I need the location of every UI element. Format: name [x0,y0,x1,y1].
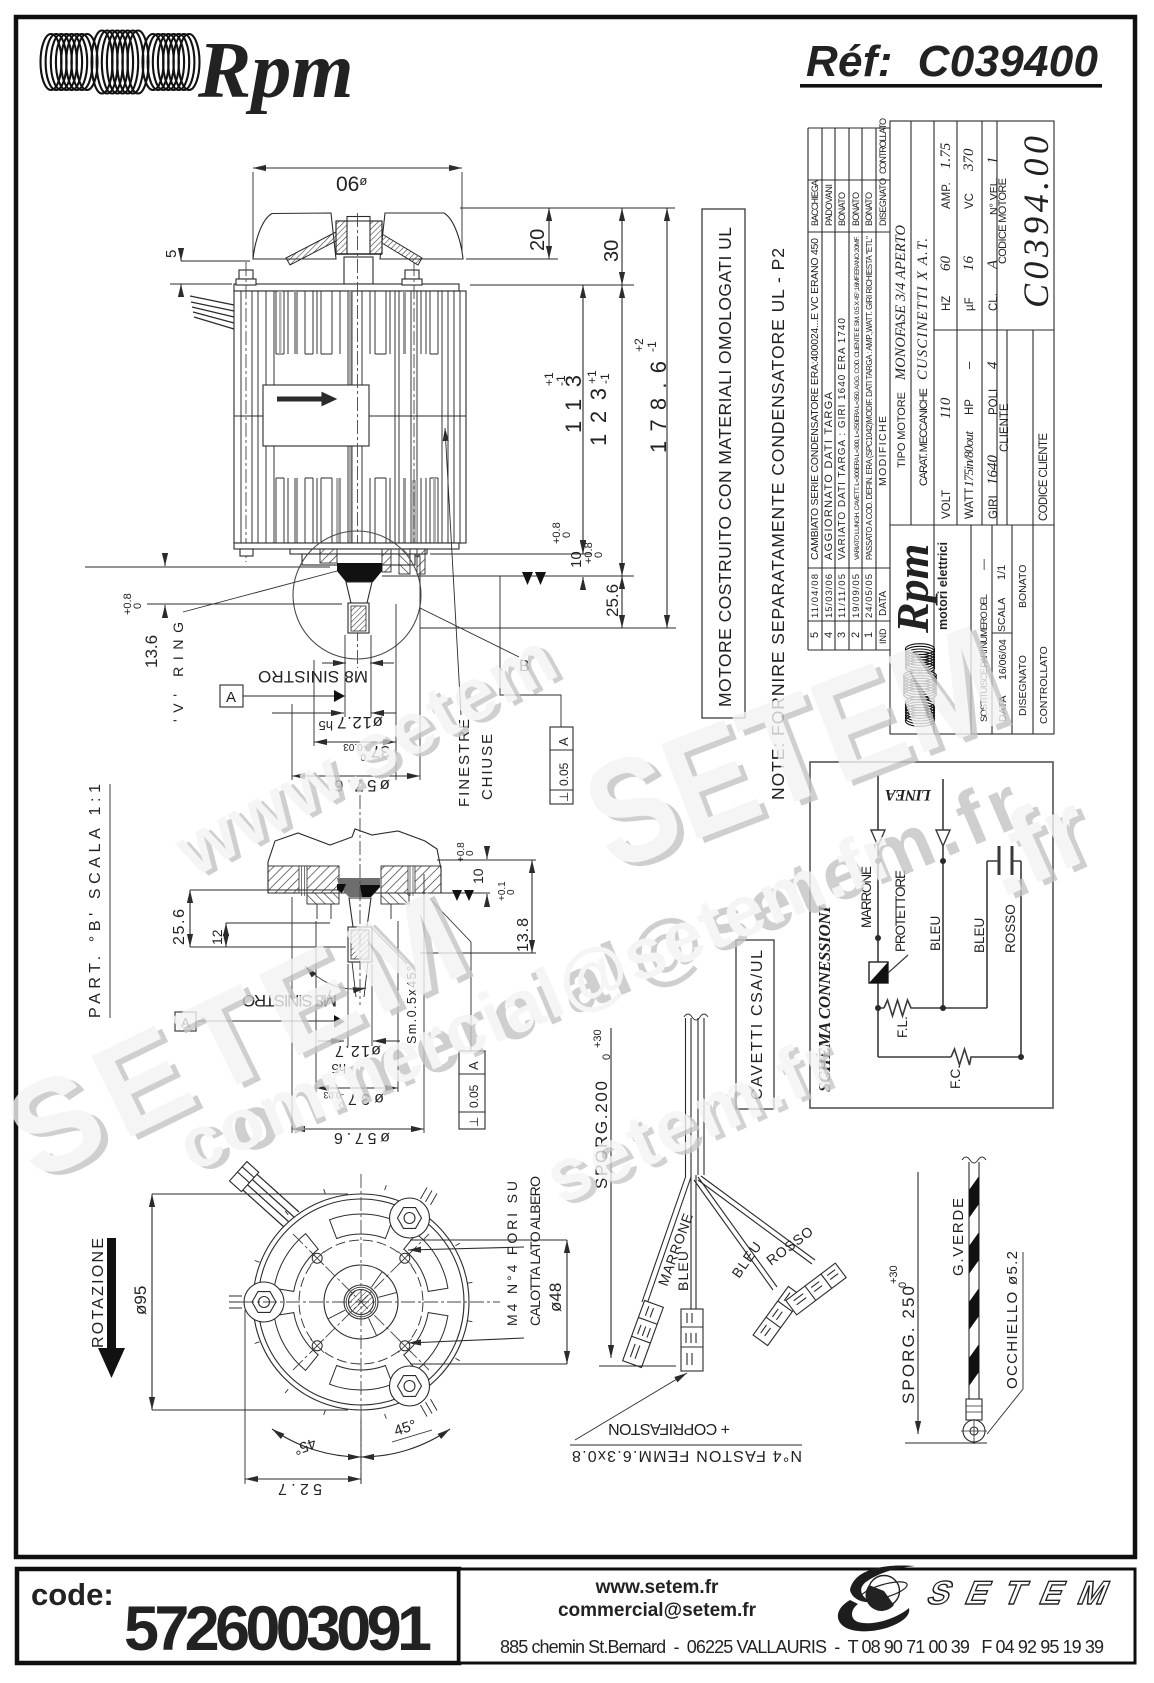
svg-text:DISEGNATO: DISEGNATO [1017,655,1029,716]
svg-text:HP: HP [964,399,976,415]
svg-text:CARAT. MECCANICHE: CARAT. MECCANICHE [918,388,930,486]
svg-text:PADOVANI: PADOVANI [824,184,834,226]
svg-text:VC: VC [964,193,976,209]
svg-text:BLEU: BLEU [972,918,987,953]
svg-text:Réf: C039400: Réf: C039400 [806,37,1099,86]
svg-text:24/05/05: 24/05/05 [864,574,875,618]
svg-text:45°: 45° [392,1417,419,1440]
svg-text:45°: 45° [291,1434,318,1458]
svg-text:25.6: 25.6 [171,909,188,945]
svg-text:ø48: ø48 [546,1283,565,1312]
svg-text:M4 N°4 FORI SU: M4 N°4 FORI SU [504,1181,520,1326]
svg-text:4: 4 [823,632,835,638]
svg-text:HZ: HZ [941,296,953,311]
svg-text:A: A [226,689,236,706]
svg-text:www.setem.fr: www.setem.fr [595,1577,719,1598]
svg-text:0.05: 0.05 [557,762,571,786]
svg-text:CAMBIATO SERIE CONDENSATORE ER: CAMBIATO SERIE CONDENSATORE ERA:400024..… [809,238,821,560]
svg-text:11/04/08: 11/04/08 [810,574,821,618]
svg-text:175in/80out: 175in/80out [961,431,976,487]
svg-text:0.05: 0.05 [467,1084,481,1108]
svg-text:BONATO: BONATO [837,192,847,226]
svg-text:µF: µF [964,297,976,311]
svg-text:code:: code: [31,1577,114,1612]
svg-text:15/03/06: 15/03/06 [824,574,835,618]
svg-text:TIPO MOTORE: TIPO MOTORE [896,392,908,468]
svg-text:CUSCINETTI X A.T.: CUSCINETTI X A.T. [915,238,931,380]
svg-text:PASSATO A COD. DEFIN. ERA (SPC: PASSATO A COD. DEFIN. ERA (SPC1042)MODIF… [865,236,874,560]
svg-text:12: 12 [209,929,225,945]
svg-text:5726003091: 5726003091 [124,1594,432,1664]
svg-text:0: 0 [561,532,573,538]
svg-text:1.75: 1.75 [938,142,954,169]
svg-text:0: 0 [601,1054,613,1060]
svg-text:AMP.: AMP. [941,182,953,209]
svg-text:CODICE CLIENTE: CODICE CLIENTE [1038,433,1050,521]
svg-text:10: 10 [470,868,486,884]
svg-text:-1: -1 [598,373,612,384]
svg-text:+2: +2 [632,338,646,352]
svg-text:ø95: ø95 [131,1286,150,1315]
svg-text:06ø: 06ø [336,173,367,196]
svg-text:⊥: ⊥ [557,792,571,802]
svg-text:BONATO: BONATO [864,192,874,226]
svg-text:13.8: 13.8 [515,918,532,952]
svg-text:DISEGNATO: DISEGNATO [878,178,888,226]
svg-text:VARIATO DATI TARGA : GIRI 1640: VARIATO DATI TARGA : GIRI 1640 ERA 1740 [837,318,848,560]
svg-text:MONOFASE 3/4 APERTO: MONOFASE 3/4 APERTO [893,224,909,381]
svg-text:0: 0 [593,552,605,558]
svg-text:F.L.: F.L. [895,1016,910,1038]
svg-text:CLIENTE: CLIENTE [999,403,1011,452]
svg-text:MOTORE COSTRUITO CON MATERIALI: MOTORE COSTRUITO CON MATERIALI OMOLOGATI… [715,227,735,707]
svg-text:ROTAZIONE: ROTAZIONE [90,1238,107,1348]
svg-text:–: – [961,361,976,369]
svg-text:CONTROLLATO: CONTROLLATO [878,118,888,174]
svg-text:SETEM: SETEM [922,1575,1122,1612]
svg-text:M8 SINISTRO: M8 SINISTRO [258,667,368,686]
svg-text:CONTROLLATO: CONTROLLATO [1038,646,1050,724]
svg-text:11/11/05: 11/11/05 [837,574,848,618]
svg-text:AGGIORNATO DATI TARGA: AGGIORNATO DATI TARGA [823,391,835,560]
svg-text:CALOTTA LATO ALBERO: CALOTTA LATO ALBERO [527,1176,543,1326]
svg-text:BLEU: BLEU [728,1239,764,1281]
svg-text:123: 123 [586,388,611,446]
svg-text:G.VERDE: G.VERDE [950,1198,967,1276]
svg-text:885 chemin St.Bernard - 0622: 885 chemin St.Bernard - 06225 VALLAURIS … [500,1637,1104,1657]
svg-text:4: 4 [985,361,1001,369]
svg-text:Rpm: Rpm [197,27,354,115]
svg-text:110: 110 [938,397,954,419]
svg-text:25.6: 25.6 [603,584,622,617]
svg-text:20: 20 [527,229,549,251]
svg-text:-1: -1 [554,375,568,386]
svg-text:+30: +30 [888,1265,900,1284]
svg-text:BONATO: BONATO [1017,565,1029,608]
svg-text:BONATO: BONATO [851,192,861,226]
svg-text:+30: +30 [592,1029,604,1048]
svg-text:—: — [978,559,990,570]
svg-text:19/09/05: 19/09/05 [851,574,862,618]
svg-text:52.7: 52.7 [278,1480,322,1497]
svg-text:C0394.00: C0394.00 [1016,136,1056,308]
svg-text:+1: +1 [585,370,599,384]
svg-text:1: 1 [985,157,1001,165]
svg-text:-1: -1 [645,341,659,352]
svg-text:F.C.: F.C. [948,1065,963,1089]
svg-text:'V' RING: 'V' RING [170,622,186,722]
svg-text:0: 0 [506,889,517,895]
svg-text:30: 30 [601,240,623,262]
svg-text:CHIUSE: CHIUSE [479,734,496,800]
svg-text:3: 3 [836,632,848,638]
svg-text:A: A [556,737,571,746]
svg-text:N°4 FASTON FEMM.6.3x0.8: N°4 FASTON FEMM.6.3x0.8 [572,1447,802,1464]
svg-text:0: 0 [465,850,476,856]
svg-text:+ COPRIFASTON: + COPRIFASTON [608,1420,730,1437]
svg-text:0: 0 [897,1282,909,1288]
svg-text:SPORG. 250: SPORG. 250 [899,1286,918,1404]
svg-text:VARIATO LUNGH. CAVETT. L=300ER: VARIATO LUNGH. CAVETT. L=300ERA L=300, L… [853,236,861,560]
svg-text:CL.: CL. [988,293,1000,311]
svg-text:SCALA: SCALA [996,598,1008,632]
svg-text:WATT: WATT [964,488,976,519]
svg-text:16: 16 [961,256,977,272]
svg-text:13.6: 13.6 [142,635,161,668]
svg-text:BACCHIEGA: BACCHIEGA [810,180,820,226]
svg-text:60: 60 [938,256,954,272]
svg-text:commercial@setem.fr: commercial@setem.fr [558,1600,757,1621]
svg-text:1/1: 1/1 [996,565,1008,580]
svg-text:0: 0 [132,603,144,609]
svg-text:⊥: ⊥ [467,1117,481,1127]
svg-text:PART. °B' SCALA 1:1: PART. °B' SCALA 1:1 [87,784,104,1018]
svg-text:BLEU: BLEU [928,916,943,951]
svg-text:GIRI: GIRI [988,495,1000,519]
svg-text:1640: 1640 [985,455,1001,486]
svg-text:5: 5 [163,250,180,258]
svg-text:BLEU: BLEU [675,1251,691,1291]
svg-text:VOLT: VOLT [941,490,953,519]
svg-text:CODICE MOTORE: CODICE MOTORE [997,178,1009,264]
svg-text:MODIFICHE: MODIFICHE [877,416,889,486]
svg-text:5: 5 [809,632,821,638]
svg-text:OCCHIELLO ø5.2: OCCHIELLO ø5.2 [1004,1251,1021,1389]
svg-text:370: 370 [961,148,977,172]
